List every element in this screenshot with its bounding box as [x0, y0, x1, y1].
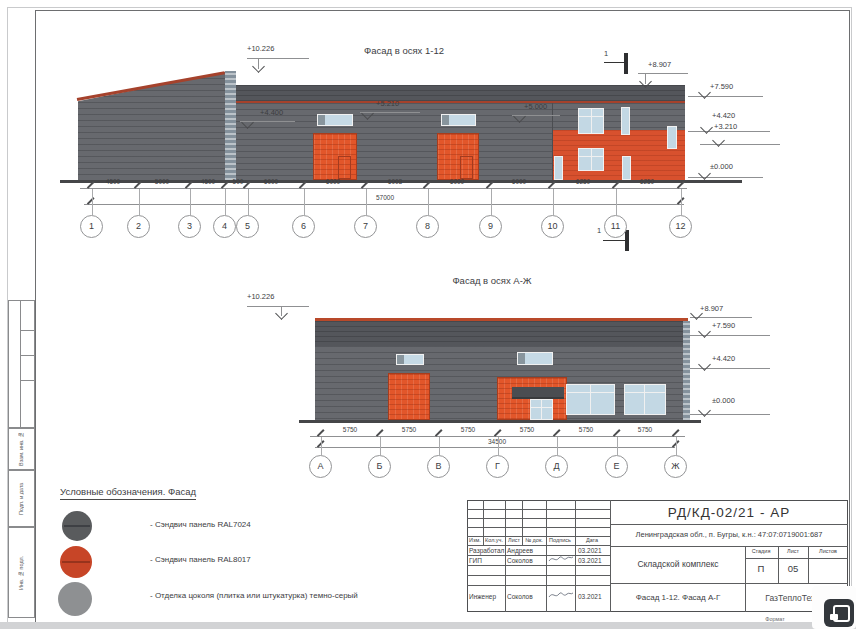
facade1-door-left	[554, 156, 563, 180]
viewer-bottom-bar	[0, 622, 856, 629]
legend-swatch-ral8017	[60, 546, 92, 578]
dimension-total-line	[315, 447, 675, 448]
facade2-ground-line	[299, 420, 701, 423]
stamp-row-role: ГИП	[469, 558, 482, 565]
axis-bubble-4: 4	[213, 215, 236, 238]
stamp-line	[610, 500, 611, 612]
axis-bubble-6: 6	[292, 215, 315, 238]
stamp-stage-label: Стадия	[752, 549, 771, 555]
dim-value: 5000	[155, 179, 169, 186]
axis-bubble-a: А	[309, 455, 332, 478]
stamp-location: Ленинградская обл., п. Бугры, к.н.: 47:0…	[636, 531, 823, 539]
facade2-storefront-window-2	[624, 384, 666, 415]
axis-bubble-1: 1	[80, 215, 103, 238]
facade1-level-0000: ±0.000	[710, 163, 733, 171]
stamp-line	[467, 518, 610, 519]
facade2-entrance-canopy	[512, 387, 564, 397]
axis-bubble-g: Г	[486, 455, 509, 478]
legend-swatch-plinth	[58, 582, 92, 616]
facade1-orange-base-band	[552, 130, 685, 180]
stamp-line	[522, 500, 523, 545]
facade1-level-3210: +3.210	[714, 123, 737, 131]
dimension-line	[80, 188, 687, 189]
stamp-line	[778, 546, 779, 583]
facade2-gate	[388, 373, 430, 420]
facade1-level-5000: +5.000	[524, 103, 547, 111]
axis-bubble-12: 12	[669, 215, 692, 238]
stamp-line	[745, 546, 746, 612]
facade1-upper-window	[578, 108, 604, 134]
dim-value: 6000	[450, 179, 464, 186]
facade1-lower-window	[578, 148, 604, 171]
stamp-row-role: Инженер	[469, 594, 496, 601]
facade1-ribbon-window-2	[441, 114, 476, 126]
dim-total: 57000	[376, 195, 394, 202]
section-mark-label-top: 1	[604, 50, 608, 58]
facade1-ribbon-window-1	[317, 114, 353, 126]
facade1-level-8907: +8.907	[648, 61, 671, 69]
frame-strip-line	[20, 380, 35, 381]
viewer-overlay-button[interactable]	[824, 599, 854, 627]
frame-label-podp: Подп. и дата	[8, 470, 34, 527]
stamp-col-izm: Изм.	[469, 538, 481, 544]
stamp-sheet-label: Лист	[787, 549, 799, 555]
stamp-line	[467, 565, 610, 566]
stamp-row-date: 03.2021	[578, 558, 602, 565]
section-flag-line	[604, 62, 626, 63]
frame-strip-line	[20, 355, 35, 356]
facade1-parapet-band	[236, 85, 685, 101]
axis-bubble-7: 7	[354, 215, 377, 238]
facade1-junction-strip	[225, 71, 236, 180]
axis-bubble-3: 3	[178, 215, 201, 238]
legend-label-plinth: - Отделка цоколя (плитка или штукатурка)…	[150, 592, 358, 600]
axis-bubble-e: Е	[605, 455, 628, 478]
facade2-parapet-band	[315, 321, 688, 346]
section-flag-bar	[625, 230, 629, 251]
axis-bubble-v: В	[427, 455, 450, 478]
dim-value: 6250	[576, 179, 590, 186]
facade2-level-4420: +4.420	[712, 355, 735, 363]
axis-bubble-10: 10	[541, 215, 564, 238]
dim-value: 4500	[201, 179, 215, 186]
dim-value: 6000	[512, 179, 526, 186]
stamp-col-kol: Кол.уч.	[485, 538, 503, 544]
facade2-title: Фасад в осях А-Ж	[452, 276, 531, 286]
facade2-downspout	[683, 321, 690, 420]
frame-strip-line	[20, 330, 35, 331]
dim-value: 5750	[343, 427, 357, 434]
legend-label-ral8017: - Сэндвич панель RAL8017	[150, 556, 251, 564]
leader-line	[247, 306, 309, 307]
facade1-title: Фасад в осях 1-12	[364, 46, 444, 56]
level-line	[688, 131, 770, 132]
stamp-row-date: 03.2021	[578, 548, 602, 555]
facade2-level-0000: ±0.000	[712, 397, 735, 405]
stamp-row-role: Разработал	[469, 548, 504, 555]
facade2-level-7590: +7.590	[712, 322, 735, 330]
axis-bubble-8: 8	[416, 215, 439, 238]
axis-bubble-b: Б	[368, 455, 391, 478]
stamp-line	[808, 546, 809, 583]
frame-label-vzam: Взам. инв. №	[8, 428, 34, 470]
axis-bubble-11: 11	[604, 215, 627, 238]
stamp-sheet-value: 05	[788, 564, 799, 574]
dim-value: 6250	[640, 179, 654, 186]
dim-value: 6000	[264, 179, 278, 186]
stamp-col-list: Лист	[508, 538, 520, 544]
stamp-line	[610, 583, 848, 584]
facade1-upper-narrow-window	[621, 107, 630, 135]
dim-value: 5750	[579, 427, 593, 434]
stamp-col-doc: № док.	[525, 538, 543, 544]
facade2-level-8907: +8.907	[700, 305, 723, 313]
level-line	[688, 177, 763, 178]
legend-title: Условные обозначения. Фасад	[60, 487, 196, 500]
dim-value: 5750	[461, 427, 475, 434]
axis-bubble-9: 9	[479, 215, 502, 238]
axis-bubble-5: 5	[236, 215, 259, 238]
dim-value: 5750	[402, 427, 416, 434]
level-line	[688, 96, 763, 97]
panel-joint-line	[64, 525, 90, 527]
stamp-line	[745, 558, 848, 559]
stamp-line	[467, 509, 610, 510]
panel-joint-line	[62, 561, 90, 563]
stamp-col-date: Дата	[586, 538, 598, 544]
facade2-storefront-window-1	[566, 384, 615, 415]
stamp-line	[467, 555, 610, 556]
facade2-level-10226: +10.226	[247, 293, 274, 301]
stamp-line	[610, 546, 848, 547]
legend-label-ral7024: - Сэндвич панель RAL7024	[150, 521, 251, 529]
facade1-level-10226: +10.226	[247, 45, 274, 53]
frame-label-inv: Инв. № подл.	[8, 527, 34, 618]
stamp-line	[610, 524, 848, 525]
stamp-line	[546, 500, 547, 612]
level-line	[700, 144, 780, 145]
section-mark-label-bottom: 1	[597, 227, 601, 235]
axis-bubble-d: Д	[545, 455, 568, 478]
dim-value: 5750	[638, 427, 652, 434]
facade1-level-5210: +5.210	[376, 100, 399, 108]
facade1-level-4400: +4.400	[260, 109, 283, 117]
stamp-drawing-name: Фасад 1-12. Фасад А-Г	[636, 594, 721, 602]
facade1-door-right	[622, 156, 631, 180]
stamp-row-name: Соколов	[507, 594, 533, 601]
facade2-ribbon-window-2	[517, 352, 553, 365]
facade1-gate-1-wicket-door	[338, 156, 351, 179]
facade2-ribbon-window-1	[396, 354, 424, 365]
stamp-line	[467, 545, 610, 546]
dim-value: 5750	[520, 427, 534, 434]
stamp-object-name: Складской комплекс	[637, 560, 718, 569]
facade1-gate-2-wicket-door	[460, 156, 473, 179]
stamp-line	[467, 585, 610, 586]
signature	[548, 554, 574, 564]
leader-line	[247, 58, 309, 59]
legend-swatch-ral7024	[62, 511, 92, 541]
stamp-doc-number: РД/КД-02/21 - АР	[668, 506, 790, 520]
dimension-total-line	[84, 204, 684, 205]
facade2-entrance-door	[530, 399, 553, 420]
stamp-line	[483, 500, 484, 545]
level-line	[690, 317, 752, 318]
dim-value: 4500	[106, 179, 120, 186]
section-flag-line	[603, 240, 625, 241]
drawing-sheet: Взам. инв. № Подп. и дата Инв. № подл. Ф…	[0, 0, 856, 629]
stamp-sheets-label: Листов	[819, 549, 837, 555]
window-icon-corner	[830, 614, 838, 620]
section-flag-bar	[624, 53, 628, 74]
stamp-line	[505, 500, 506, 612]
stamp-line	[467, 527, 610, 528]
stamp-row-name: Соколов	[507, 558, 533, 565]
facade1-level-4420: +4.420	[712, 112, 735, 120]
stamp-row-date: 03.2021	[578, 594, 602, 601]
dim-value: 500	[233, 179, 244, 186]
frame-strip-top-table	[8, 300, 35, 428]
stamp-row-name: Андреев	[507, 548, 533, 555]
frame-strip-divider	[20, 300, 21, 428]
axis-bubble-zh: Ж	[664, 455, 687, 478]
stamp-line	[467, 575, 610, 576]
stamp-line	[575, 500, 576, 612]
axis-bubble-2: 2	[127, 215, 150, 238]
facade1-corner-window	[667, 126, 677, 149]
facade1-level-7590: +7.590	[710, 83, 733, 91]
stamp-col-sign: Подпись	[549, 538, 571, 544]
signature	[548, 590, 574, 600]
dim-value: 6000	[326, 179, 340, 186]
dim-value: 6003	[388, 179, 402, 186]
stamp-stage-value: П	[758, 564, 765, 574]
